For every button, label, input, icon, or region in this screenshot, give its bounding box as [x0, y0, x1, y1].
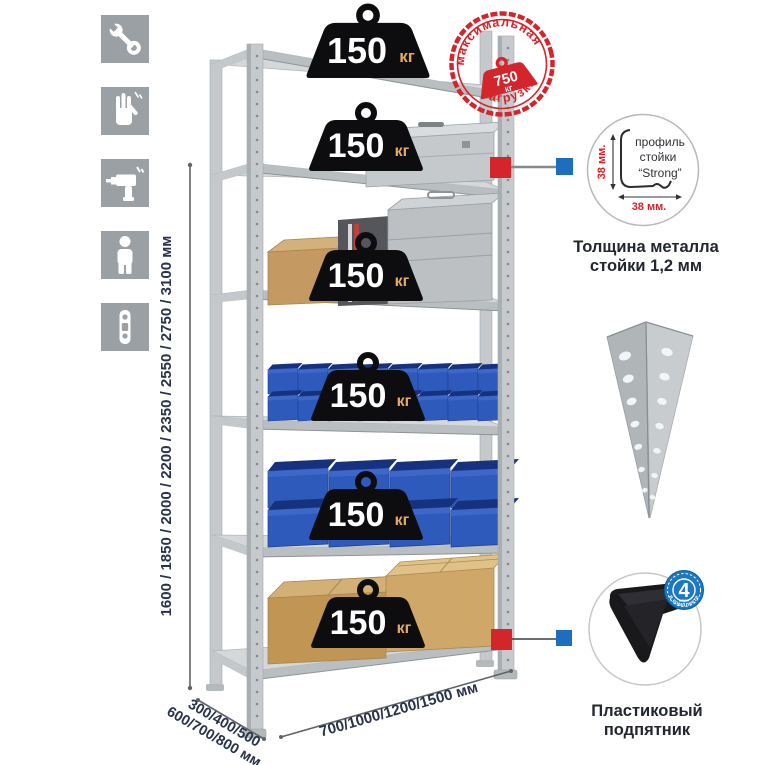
- height-dimension: 1600 / 1850 / 2000 / 2200 / 2350 / 2550 …: [158, 163, 192, 690]
- width-dimension: 700/1000/1200/1500 мм: [279, 669, 513, 740]
- profile-label-line1: профиль: [635, 135, 685, 149]
- person-icon-tile: [101, 231, 149, 279]
- weight-unit: кг: [397, 393, 412, 410]
- upright-profile-image: [607, 322, 693, 518]
- callout-blue-marker: [556, 158, 573, 175]
- rack-profile-icon-tile: [101, 303, 149, 351]
- profile-label-line3: “Strong”: [638, 166, 681, 180]
- weight-value: 150: [328, 496, 385, 534]
- profile-callout: 38 мм. 38 мм. профиль стойки “Strong” То…: [490, 115, 720, 276]
- height-dimension-label: 1600 / 1850 / 2000 / 2200 / 2350 / 2550 …: [158, 236, 175, 617]
- weight-unit: кг: [399, 47, 415, 66]
- profile-label-line2: стойки: [640, 150, 677, 164]
- quantity-badge: 4 штуки в комплекте: [665, 571, 704, 610]
- foot-caption-line2: подпятник: [604, 721, 691, 739]
- weight-value: 150: [327, 30, 387, 71]
- width-dimension-label: 700/1000/1200/1500 мм: [318, 679, 480, 741]
- weight-unit: кг: [397, 620, 412, 637]
- weight-unit: кг: [395, 273, 410, 290]
- weight-shelf-2: 150 кг: [309, 105, 423, 171]
- infographic-art: 1600 / 1850 / 2000 / 2200 / 2350 / 2550 …: [0, 0, 765, 765]
- weight-value: 150: [330, 377, 387, 415]
- callout-blue-marker: [556, 630, 572, 646]
- rack-profile-icon: [120, 310, 131, 344]
- drill-icon-tile: [101, 159, 149, 207]
- wrench-icon-tile: [101, 15, 149, 63]
- callout-red-marker: [491, 629, 512, 650]
- foot-callout: 4 штуки в комплекте Пластиковый подпятни…: [491, 571, 704, 740]
- foot-caption-line1: Пластиковый: [591, 702, 702, 720]
- profile-dim-horizontal: 38 мм.: [632, 201, 667, 213]
- profile-caption-line2: стойки 1,2 мм: [590, 257, 702, 275]
- profile-caption-line1: Толщина металла: [573, 238, 719, 256]
- gloves-icon-tile: [101, 87, 149, 135]
- profile-dim-vertical: 38 мм.: [596, 145, 608, 180]
- weight-value: 150: [330, 604, 387, 642]
- feature-icons-column: [101, 15, 149, 351]
- shelving-product-infographic: 1600 / 1850 / 2000 / 2200 / 2350 / 2550 …: [0, 0, 765, 765]
- weight-value: 150: [328, 127, 385, 165]
- weight-shelf-1: 150 кг: [307, 7, 430, 78]
- weight-unit: кг: [395, 143, 410, 160]
- weight-unit: кг: [395, 512, 410, 529]
- weight-value: 150: [328, 257, 385, 295]
- callout-red-marker: [490, 157, 511, 178]
